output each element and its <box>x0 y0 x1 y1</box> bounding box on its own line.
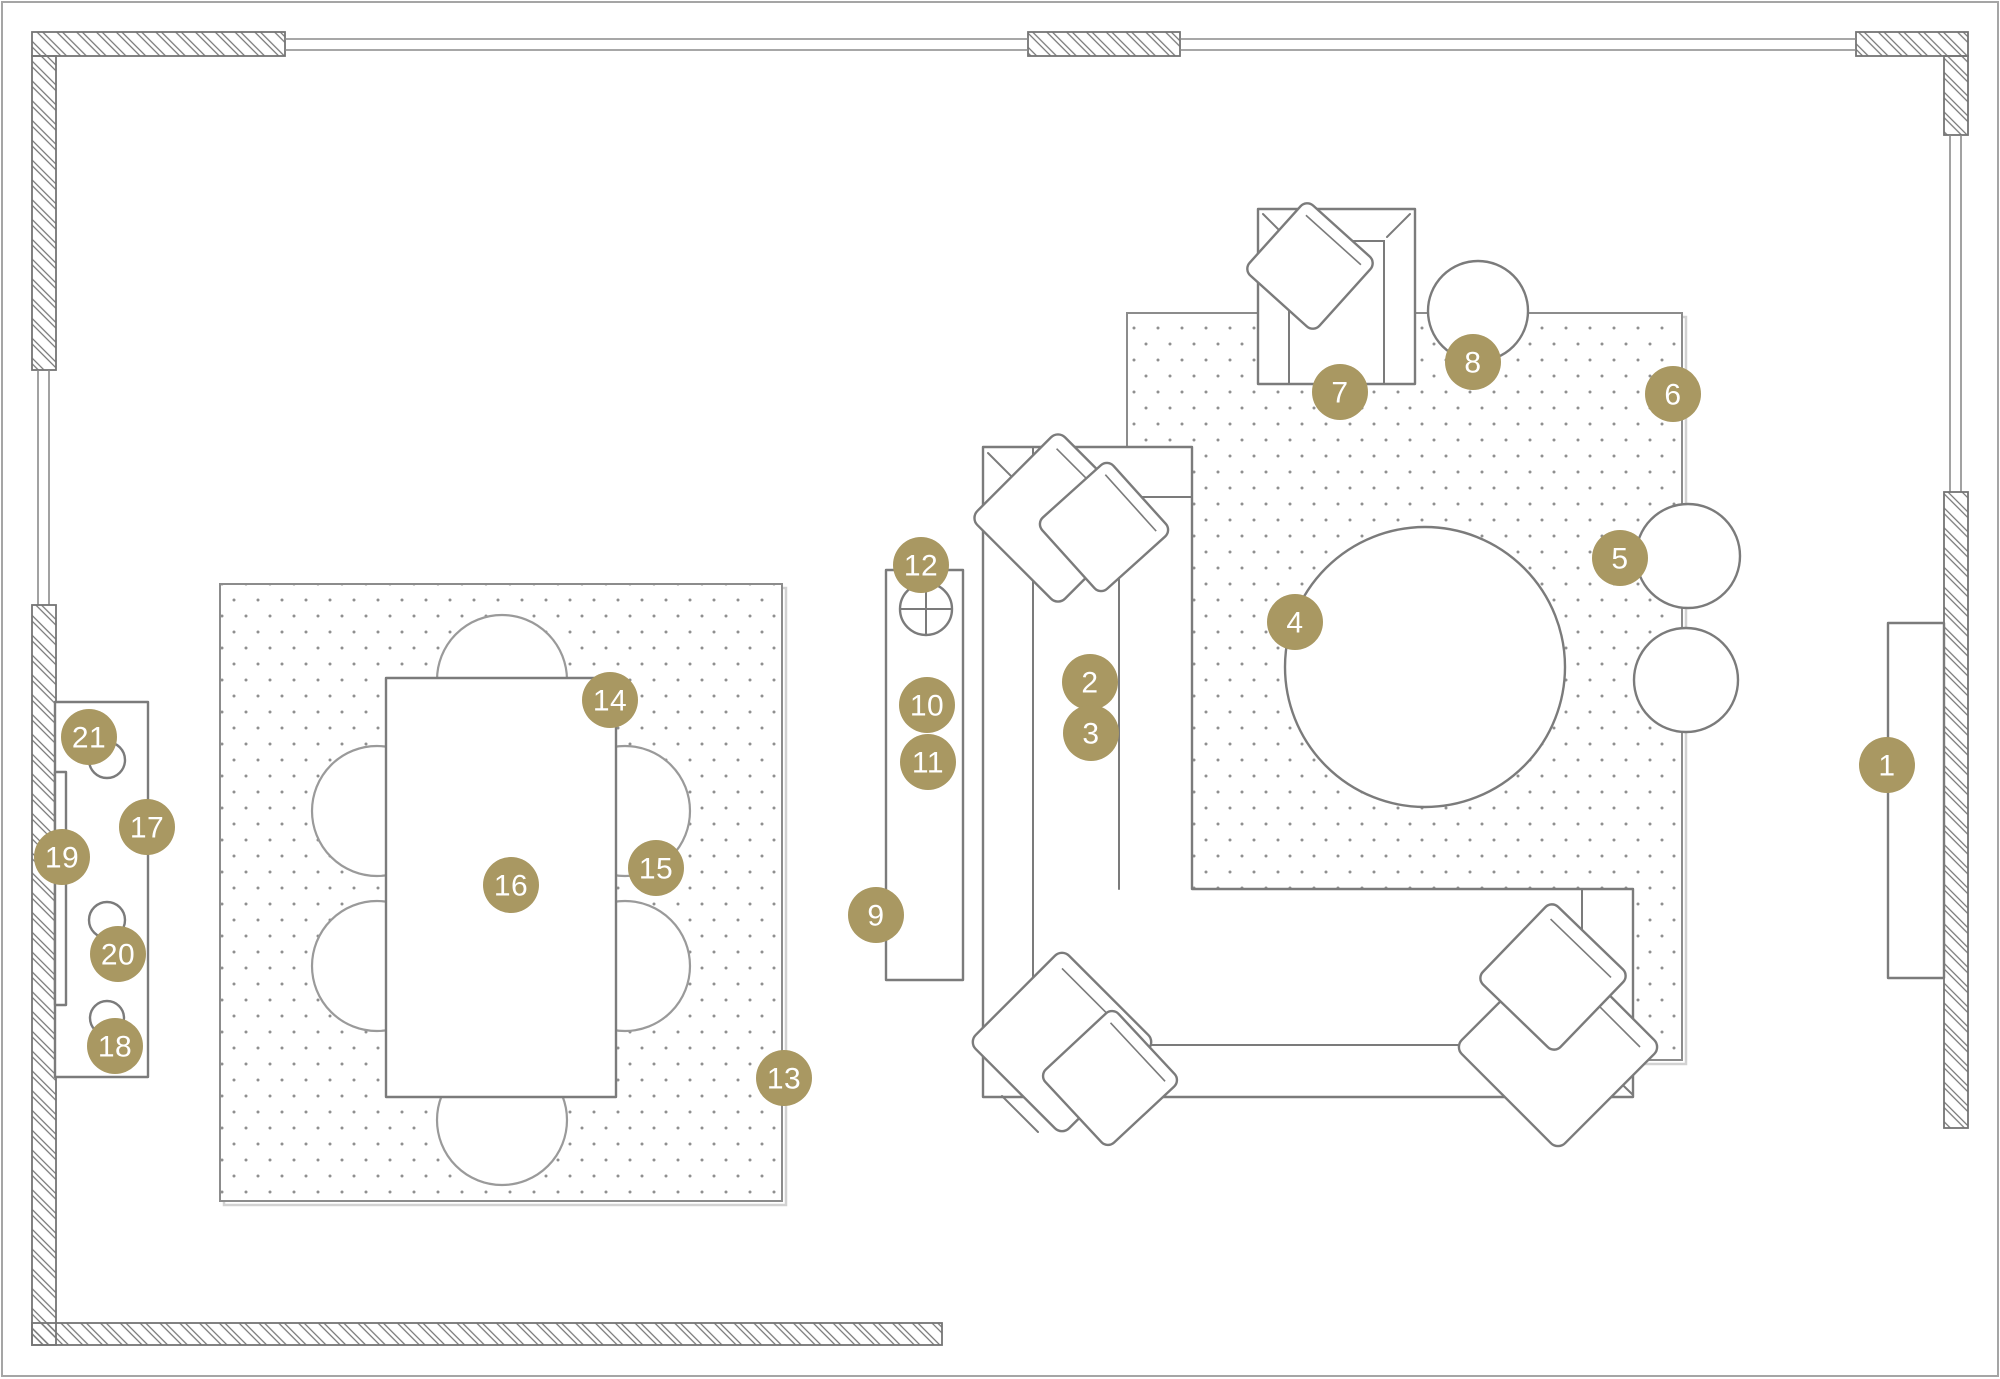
item-marker-label: 15 <box>639 853 673 886</box>
item-marker-label: 1 <box>1878 750 1895 783</box>
item-marker-label: 7 <box>1331 377 1348 410</box>
ball-side-table-1 <box>1636 504 1740 608</box>
item-marker-12[interactable]: 12 <box>893 537 949 593</box>
wall-left-upper <box>32 56 56 370</box>
item-marker-18[interactable]: 18 <box>87 1018 143 1074</box>
item-marker-label: 10 <box>910 690 944 723</box>
item-marker-label: 8 <box>1464 347 1481 380</box>
item-marker-label: 2 <box>1081 667 1098 700</box>
item-marker-11[interactable]: 11 <box>900 734 956 790</box>
item-marker-label: 5 <box>1611 543 1628 576</box>
item-marker-10[interactable]: 10 <box>899 677 955 733</box>
item-marker-label: 20 <box>101 939 135 972</box>
item-marker-9[interactable]: 9 <box>848 887 904 943</box>
item-marker-15[interactable]: 15 <box>628 840 684 896</box>
item-marker-4[interactable]: 4 <box>1267 594 1323 650</box>
item-marker-8[interactable]: 8 <box>1445 334 1501 390</box>
item-marker-label: 11 <box>912 747 944 780</box>
item-marker-label: 18 <box>98 1031 132 1064</box>
item-marker-6[interactable]: 6 <box>1645 366 1701 422</box>
item-marker-1[interactable]: 1 <box>1859 737 1915 793</box>
item-marker-label: 3 <box>1082 718 1099 751</box>
floor-plan-canvas: 123456789101112131415161718192021 <box>0 0 2000 1379</box>
window-right <box>1950 135 1961 492</box>
item-marker-label: 16 <box>494 870 528 903</box>
item-marker-16[interactable]: 16 <box>483 857 539 913</box>
wall-top-right <box>1856 32 1968 56</box>
item-marker-label: 4 <box>1286 607 1303 640</box>
item-marker-label: 19 <box>45 842 79 875</box>
item-marker-label: 17 <box>130 812 164 845</box>
item-marker-20[interactable]: 20 <box>90 926 146 982</box>
item-marker-7[interactable]: 7 <box>1312 364 1368 420</box>
wall-left-lower <box>32 605 56 1345</box>
item-marker-17[interactable]: 17 <box>119 799 175 855</box>
item-marker-label: 9 <box>867 900 884 933</box>
ball-side-table-2 <box>1634 628 1738 732</box>
wall-right-lower <box>1944 492 1968 1128</box>
wall-top-left <box>32 32 285 56</box>
armchair-top <box>1244 200 1415 384</box>
leaning-art-frame <box>55 772 66 1005</box>
item-marker-13[interactable]: 13 <box>756 1050 812 1106</box>
item-marker-3[interactable]: 3 <box>1063 705 1119 761</box>
window-top-right <box>1180 39 1856 50</box>
item-marker-label: 14 <box>593 685 627 718</box>
wall-top-middle <box>1028 32 1180 56</box>
item-marker-14[interactable]: 14 <box>582 672 638 728</box>
wall-bottom <box>32 1323 942 1345</box>
item-marker-label: 12 <box>904 550 938 583</box>
window-top-left <box>285 39 1028 50</box>
item-marker-2[interactable]: 2 <box>1062 654 1118 710</box>
item-marker-19[interactable]: 19 <box>34 829 90 885</box>
media-console <box>1888 623 1944 978</box>
item-marker-label: 6 <box>1664 379 1681 412</box>
round-coffee-table <box>1285 527 1565 807</box>
floor-plan-drawing: 123456789101112131415161718192021 <box>0 0 2000 1379</box>
item-marker-5[interactable]: 5 <box>1592 530 1648 586</box>
item-marker-label: 13 <box>767 1063 801 1096</box>
item-marker-21[interactable]: 21 <box>61 709 117 765</box>
item-marker-label: 21 <box>72 722 106 755</box>
wall-right-upper <box>1944 56 1968 135</box>
window-left <box>38 370 49 605</box>
